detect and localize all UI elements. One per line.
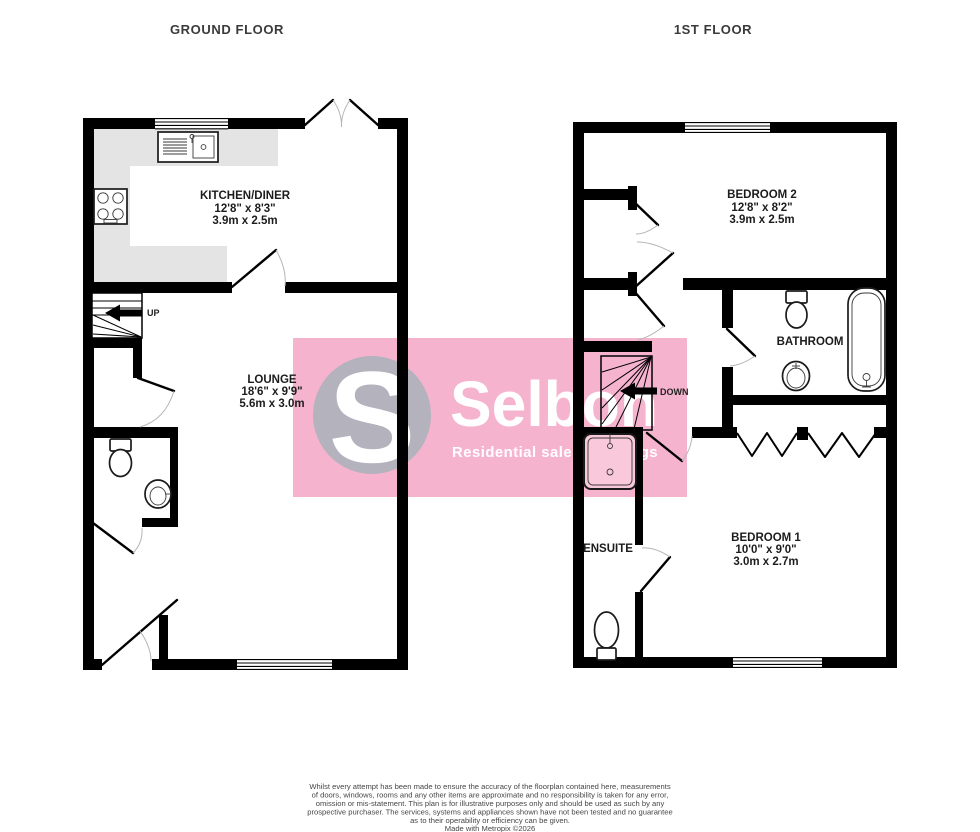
hall-door <box>138 378 174 427</box>
bathroom-door <box>727 329 755 366</box>
ensuite-label: ENSUITE <box>583 543 633 555</box>
lounge-dims-metric: 5.6m x 3.0m <box>239 398 304 410</box>
bathtub <box>848 288 885 391</box>
ensuite-toilet <box>595 612 619 660</box>
hob <box>94 189 127 224</box>
bedroom2-dims-metric: 3.9m x 2.5m <box>729 214 794 226</box>
kitchen-label: KITCHEN/DINER <box>200 190 291 202</box>
bedroom1-window <box>733 657 822 668</box>
up-label: UP <box>147 308 160 318</box>
french-doors <box>305 100 378 127</box>
first-floor-title: 1ST FLOOR <box>674 22 752 37</box>
down-label: DOWN <box>660 387 689 397</box>
ensuite-door <box>641 548 670 591</box>
ground-floor-kitchen-window <box>155 118 228 129</box>
ground-floor-lounge-window <box>237 659 332 670</box>
stairs-door <box>634 291 664 340</box>
disclaimer-credit: Made with Metropix ©2026 <box>445 824 535 832</box>
kitchen-dims-imperial: 12'8" x 8'3" <box>214 203 275 215</box>
floorplan-image: S Selbon Residential sales & lettings GR… <box>0 0 980 832</box>
bedroom1-dims-metric: 3.0m x 2.7m <box>733 556 798 568</box>
wc-door <box>93 523 142 553</box>
first-floor-plan: 1ST FLOOR <box>573 22 897 668</box>
bathroom-toilet <box>786 291 807 328</box>
staircase-up: UP <box>92 293 160 338</box>
bedroom2-window <box>685 122 770 133</box>
counter-bottom <box>94 246 227 282</box>
bedroom2-door <box>634 202 658 234</box>
bathroom-label: BATHROOM <box>777 336 844 348</box>
ground-floor-title: GROUND FLOOR <box>170 22 284 37</box>
lounge-label: LOUNGE <box>247 374 297 386</box>
floorplan-page: S Selbon Residential sales & lettings GR… <box>0 0 980 832</box>
bedroom1-label: BEDROOM 1 <box>731 532 801 544</box>
disclaimer: Whilst every attempt has been made to en… <box>307 782 672 832</box>
kitchen-sink <box>158 132 218 162</box>
shower-tray <box>584 434 636 489</box>
bathroom-basin <box>783 362 810 391</box>
kitchen-dims-metric: 3.9m x 2.5m <box>212 215 277 227</box>
wc-basin <box>145 480 171 508</box>
bedroom2-label: BEDROOM 2 <box>727 189 797 201</box>
wc-toilet <box>110 439 132 477</box>
landing-door <box>634 242 673 288</box>
kitchen-door <box>232 250 285 287</box>
bedroom2-dims-imperial: 12'8" x 8'2" <box>731 202 792 214</box>
bedroom1-dims-imperial: 10'0" x 9'0" <box>735 544 796 556</box>
lounge-dims-imperial: 18'6" x 9'9" <box>241 386 302 398</box>
